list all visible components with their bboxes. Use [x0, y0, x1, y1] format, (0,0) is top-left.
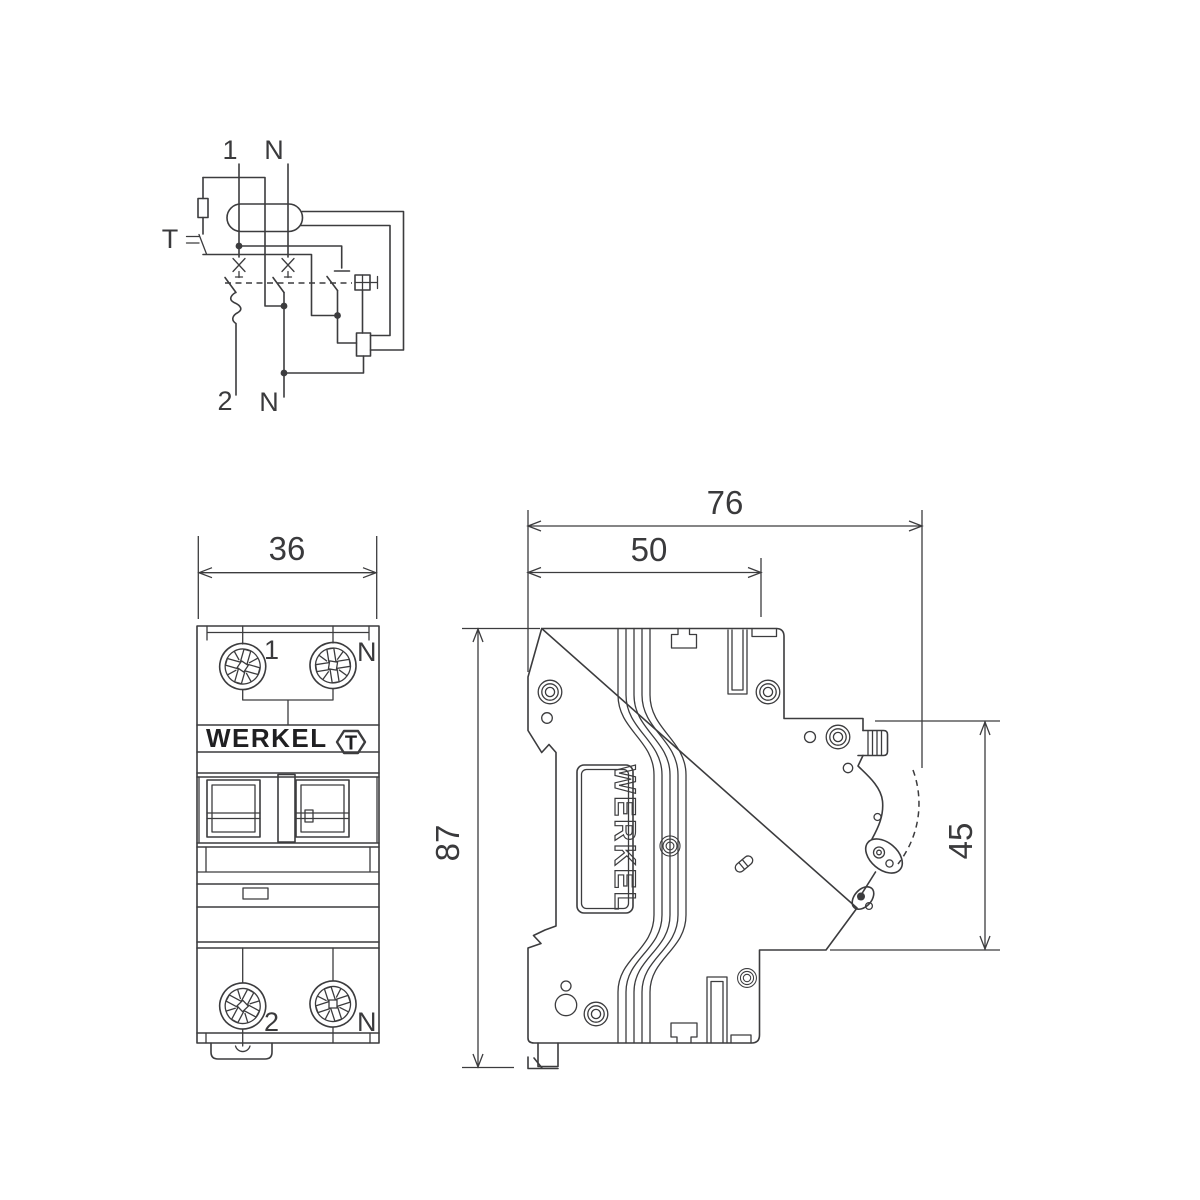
schematic-label-line-in: 1	[222, 135, 237, 165]
test-button-label: T	[345, 733, 357, 755]
dimension-depth-50: 50	[528, 531, 761, 617]
screw-terminal-1[interactable]	[214, 638, 271, 695]
thermal-release	[231, 293, 241, 396]
side-bottom-notch	[731, 1035, 751, 1043]
side-bottom-tab	[671, 1023, 697, 1043]
dim-text-50: 50	[631, 531, 668, 568]
test-resistor	[198, 199, 208, 218]
front-tab-notch	[236, 1046, 251, 1052]
screw-terminal-n-top[interactable]	[307, 639, 360, 692]
side-bottom-slot	[707, 977, 727, 1043]
dim-text-36: 36	[269, 530, 306, 567]
side-corner-notch	[752, 629, 777, 637]
junction-dot	[236, 243, 243, 250]
contact-mark-pole1	[233, 259, 245, 278]
rivet	[756, 680, 780, 704]
dimension-height-87: 87	[429, 629, 540, 1068]
dimension-width-36: 36	[198, 530, 376, 619]
rivet	[826, 725, 850, 749]
hole	[874, 814, 881, 821]
dimension-front-45: 45	[830, 721, 1000, 950]
junction-dot	[281, 370, 288, 377]
mechanism-pin	[733, 854, 754, 874]
neutral-moving-contact	[273, 278, 284, 293]
side-brand-label: WERKEL	[577, 765, 641, 913]
schematic-label-test: T	[162, 224, 179, 254]
toggle-handle-side[interactable]	[848, 731, 919, 914]
din-rail-clip[interactable]	[528, 1043, 558, 1069]
test-button[interactable]: T	[337, 731, 365, 755]
breaker-technical-drawing: 1 N T 2 N	[0, 0, 1200, 1200]
test-branch	[203, 178, 284, 307]
hole	[561, 981, 571, 991]
secondary-wire-outer	[302, 212, 404, 351]
dim-text-87: 87	[429, 825, 466, 862]
schematic-label-neutral-in: N	[264, 135, 284, 165]
marking-window	[243, 888, 268, 899]
wiring-schematic: 1 N T 2 N	[162, 135, 404, 417]
technical-drawing-page: 1 N T 2 N	[0, 0, 1200, 1200]
handle-travel-arc	[898, 770, 919, 864]
junction-dot	[281, 303, 288, 310]
hole	[805, 732, 816, 743]
schematic-label-neutral-out: N	[259, 387, 279, 417]
toggle-tie-bar	[278, 775, 295, 843]
hole	[542, 713, 553, 724]
mid-band	[197, 847, 379, 872]
front-view: 36 1 N WERKEL T	[197, 530, 379, 1059]
toggle-switch-area[interactable]	[197, 773, 379, 847]
lever-pin	[857, 893, 865, 901]
brand-logo-front: WERKEL	[206, 723, 328, 753]
contact-mark-neutral	[282, 259, 294, 278]
side-top-slot	[728, 630, 747, 694]
front-body-outline	[197, 626, 379, 1043]
front-top-wiring-lines	[243, 626, 333, 725]
rivet	[738, 969, 757, 988]
pole1-moving-contact	[225, 278, 236, 293]
trip-actuator	[355, 275, 378, 333]
label-band	[197, 884, 379, 907]
front-terminal-1-label: 1	[264, 635, 279, 665]
side-view: 76 50 87 45	[429, 484, 1000, 1069]
differential-relay	[357, 333, 371, 356]
brand-logo-side: WERKEL	[608, 765, 641, 913]
relay-output-wire	[284, 356, 364, 373]
hole	[843, 763, 852, 772]
junction-dot	[334, 312, 341, 319]
rivet	[584, 1002, 608, 1026]
side-top-tab	[672, 629, 697, 649]
rivet	[538, 680, 562, 704]
front-top-edge-detail	[207, 626, 369, 640]
screw-terminal-n-bottom[interactable]	[304, 975, 362, 1033]
knob-knurling	[868, 731, 882, 755]
dim-text-45: 45	[942, 823, 979, 860]
front-terminal-n-top-label: N	[357, 637, 377, 667]
dim-text-76: 76	[707, 484, 744, 521]
test-pushbutton	[187, 235, 207, 255]
front-bottom-band	[206, 1033, 370, 1043]
secondary-wire-inner	[301, 226, 390, 336]
hole	[555, 994, 576, 1015]
lower-section-line	[197, 942, 379, 948]
schematic-label-line-out: 2	[217, 386, 232, 416]
